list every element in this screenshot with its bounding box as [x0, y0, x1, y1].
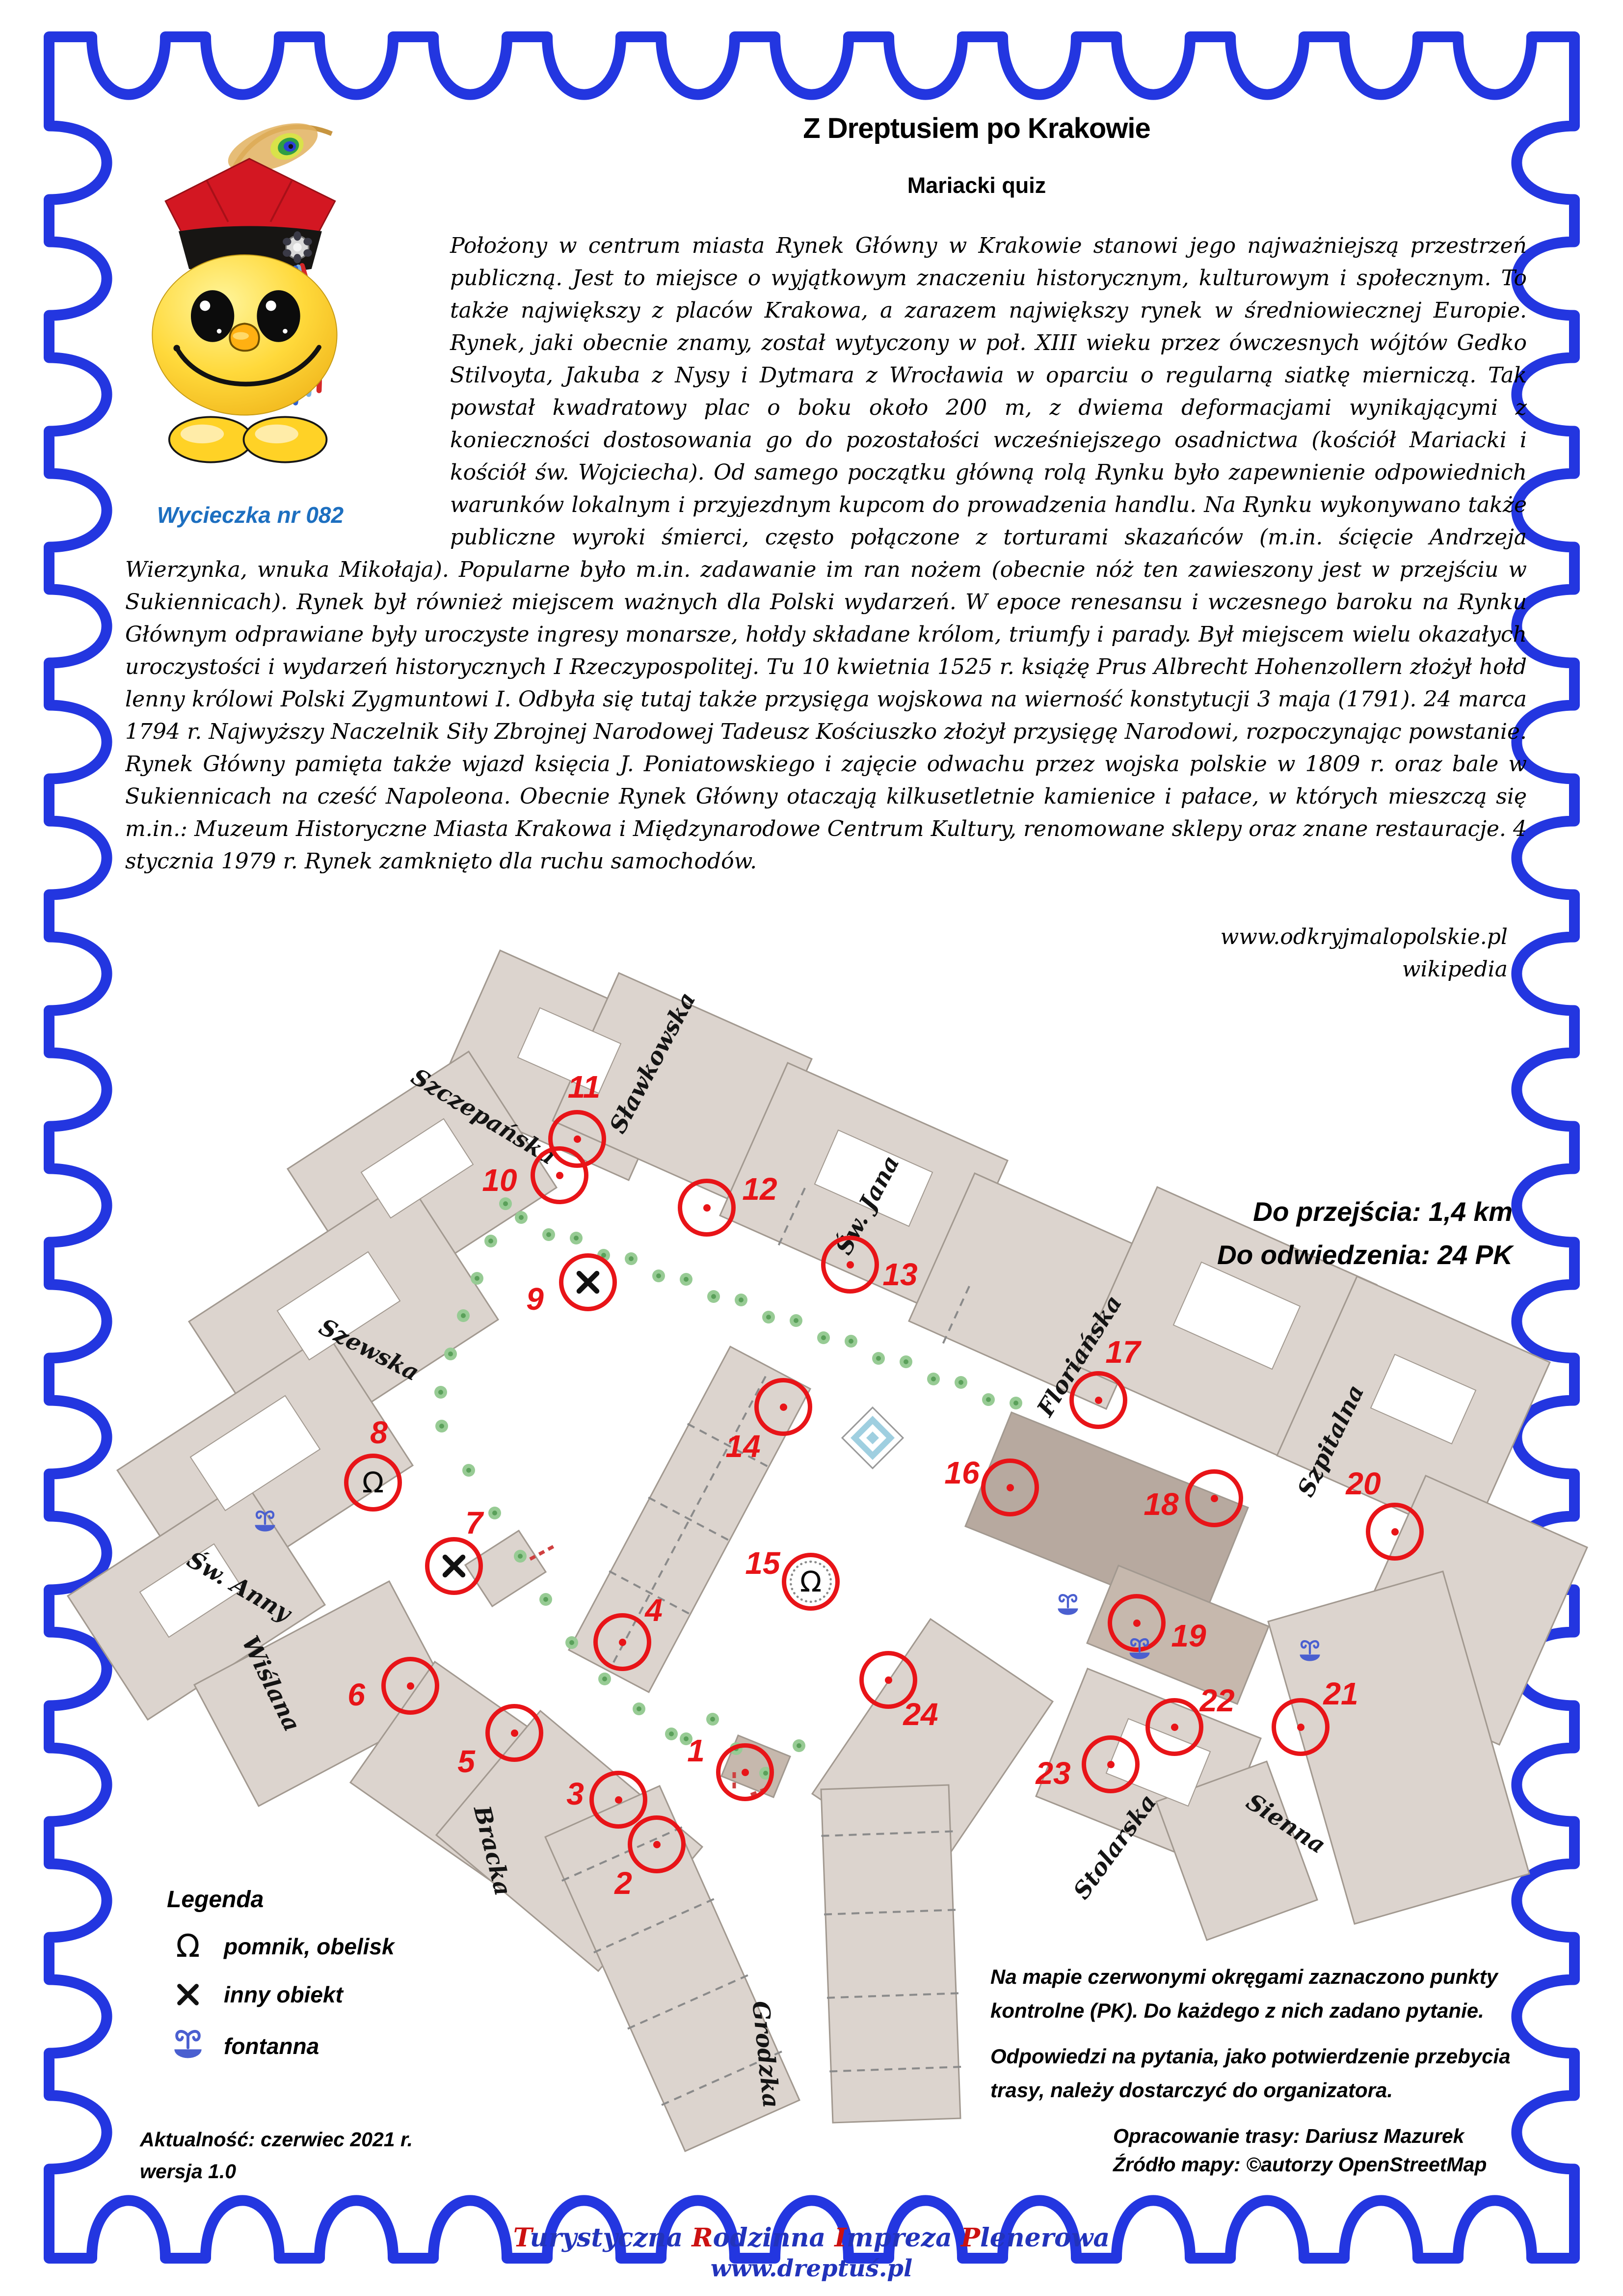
checkpoint-9	[559, 1253, 617, 1311]
fountain-icon	[1296, 1638, 1324, 1667]
checkpoint-dot	[885, 1676, 892, 1684]
map-source-text: Źródło mapy: ©autorzy OpenStreetMap	[1113, 2150, 1487, 2179]
checkpoint-dot	[1211, 1495, 1218, 1502]
checkpoint-dot	[556, 1172, 563, 1179]
checkpoint-dot	[1133, 1620, 1141, 1627]
checkpoint-number-17: 17	[1105, 1334, 1140, 1370]
legend-item-label: pomnik, obelisk	[224, 1933, 395, 1960]
fountain-icon	[169, 2027, 207, 2065]
checkpoint-23	[1082, 1735, 1140, 1793]
legend-title: Legenda	[167, 1886, 540, 1913]
organization-word: Impreza	[834, 2223, 961, 2253]
checkpoint-number-10: 10	[482, 1162, 517, 1198]
checkpoint-dot	[1391, 1528, 1399, 1536]
street-label-stolarska: Stolarska	[1068, 1789, 1162, 1904]
street-label-sienna: Sienna	[1241, 1788, 1330, 1859]
checkpoint-22	[1145, 1698, 1203, 1756]
organization-word: Rodzinna	[692, 2223, 834, 2253]
checkpoint-dot	[1095, 1397, 1102, 1404]
street-label-szczepanska: Szczepańska	[406, 1063, 560, 1171]
legend: Legenda Ωpomnik, obeliskinny obiektfonta…	[167, 1886, 540, 2065]
checkpoint-number-9: 9	[526, 1281, 544, 1317]
street-label-s-awkowska: Sławkowska	[604, 988, 701, 1138]
fountain-icon	[1125, 1636, 1154, 1667]
fountain-icon	[251, 1509, 279, 1537]
checkpoint-dot	[574, 1135, 581, 1143]
checkpoint-5	[485, 1704, 543, 1762]
checkpoint-dot	[742, 1769, 749, 1776]
organization-name: Turystyczna Rodzinna Impreza Plenerowa	[0, 2223, 1623, 2253]
checkpoint-20	[1366, 1503, 1424, 1561]
street-label-sw-anny: Św. Anny	[183, 1546, 296, 1627]
checkpoint-3	[589, 1771, 647, 1829]
checkpoint-dot	[703, 1204, 711, 1212]
checkpoint-6	[381, 1657, 439, 1715]
organization-word: Plenerowa	[961, 2223, 1110, 2253]
website-link: www.dreptuś.pl	[0, 2255, 1623, 2282]
checkpoint-1	[716, 1743, 774, 1801]
x-icon	[167, 1980, 209, 2009]
map-notes: Na mapie czerwonymi okręgami zaznaczono …	[990, 1960, 1535, 2119]
validity-text: Aktualność: czerwiec 2021 r.	[140, 2124, 413, 2156]
organization-word: Turystyczna	[513, 2223, 692, 2253]
checkpoint-number-7: 7	[465, 1505, 483, 1541]
checkpoint-number-13: 13	[882, 1256, 917, 1293]
checkpoint-number-23: 23	[1036, 1755, 1070, 1791]
meta-left: Aktualność: czerwiec 2021 r. wersja 1.0	[140, 2124, 413, 2188]
fountain-icon	[1296, 1638, 1324, 1669]
checkpoint-number-16: 16	[944, 1455, 979, 1491]
checkpoint-2	[628, 1815, 686, 1873]
street-label-bracka: Bracka	[468, 1803, 517, 1898]
fountain-icon	[251, 1509, 279, 1540]
fountain-icon	[1054, 1592, 1082, 1623]
checkpoint-11	[548, 1110, 606, 1168]
monument-icon: Ω	[167, 1931, 209, 1962]
checkpoint-12	[678, 1179, 736, 1237]
checkpoint-dot	[780, 1404, 787, 1411]
checkpoint-14	[754, 1378, 812, 1436]
checkpoint-dot	[1007, 1484, 1014, 1491]
checkpoint-8: Ω	[344, 1454, 402, 1512]
checkpoint-17	[1069, 1371, 1127, 1429]
checkpoint-18	[1185, 1469, 1243, 1527]
x-icon	[439, 1551, 469, 1581]
note-control-points: Na mapie czerwonymi okręgami zaznaczono …	[990, 1960, 1535, 2027]
checkpoint-number-2: 2	[614, 1865, 632, 1901]
checkpoint-dot	[407, 1682, 414, 1690]
x-icon	[173, 1980, 203, 2009]
checkpoint-16	[981, 1459, 1039, 1516]
checkpoint-number-11: 11	[568, 1069, 600, 1105]
version-text: wersja 1.0	[140, 2156, 413, 2188]
street-label-wislana: Wiślana	[236, 1632, 305, 1736]
checkpoint-number-14: 14	[725, 1428, 760, 1464]
checkpoint-21	[1272, 1698, 1330, 1756]
checkpoint-7	[425, 1537, 483, 1595]
legend-items: Ωpomnik, obeliskinny obiektfontanna	[167, 1931, 540, 2065]
checkpoint-dot	[511, 1729, 518, 1737]
checkpoint-number-18: 18	[1144, 1486, 1178, 1522]
checkpoint-number-15: 15	[745, 1545, 780, 1581]
checkpoint-dot	[615, 1796, 622, 1804]
checkpoint-number-1: 1	[687, 1732, 705, 1769]
checkpoint-15: Ω	[782, 1553, 840, 1611]
monument-icon: Ω	[800, 1567, 822, 1596]
checkpoint-number-5: 5	[457, 1743, 475, 1780]
note-answers: Odpowiedzi na pytania, jako potwierdzeni…	[990, 2039, 1535, 2107]
street-label-szewska: Szewska	[315, 1313, 423, 1386]
checkpoint-dot	[847, 1261, 854, 1269]
checkpoint-number-24: 24	[903, 1696, 938, 1732]
street-label-grodzka: Grodzka	[746, 1999, 785, 2109]
page-footer: Turystyczna Rodzinna Impreza Plenerowa w…	[0, 2223, 1623, 2282]
route-author-text: Opracowanie trasy: Dariusz Mazurek	[1113, 2122, 1487, 2150]
page: Z Dreptusiem po Krakowie Mariacki quiz W…	[0, 0, 1623, 2296]
checkpoint-number-20: 20	[1346, 1465, 1381, 1502]
fountain-icon	[1054, 1592, 1082, 1621]
checkpoint-dot	[653, 1841, 661, 1848]
legend-item-label: inny obiekt	[224, 1981, 343, 2008]
fountain-icon	[1125, 1636, 1154, 1665]
checkpoint-number-6: 6	[347, 1676, 365, 1713]
checkpoint-number-8: 8	[370, 1414, 388, 1451]
checkpoint-dot	[1107, 1761, 1115, 1768]
legend-item: fontanna	[167, 2027, 540, 2065]
fountain-icon	[167, 2027, 209, 2065]
checkpoint-dot	[1171, 1724, 1178, 1731]
monument-icon: Ω	[362, 1468, 384, 1497]
monument-icon: Ω	[176, 1931, 200, 1962]
meta-right: Opracowanie trasy: Dariusz Mazurek Źródł…	[1113, 2122, 1487, 2179]
legend-item: Ωpomnik, obelisk	[167, 1931, 540, 1962]
checkpoint-number-3: 3	[566, 1776, 584, 1812]
checkpoint-number-22: 22	[1199, 1682, 1234, 1719]
legend-item: inny obiekt	[167, 1980, 540, 2009]
checkpoint-number-12: 12	[742, 1171, 777, 1207]
checkpoint-number-4: 4	[645, 1592, 663, 1628]
checkpoint-13	[821, 1236, 879, 1294]
checkpoint-number-21: 21	[1323, 1675, 1358, 1712]
legend-item-label: fontanna	[224, 2033, 319, 2059]
checkpoint-dot	[619, 1639, 626, 1646]
checkpoint-4	[593, 1613, 651, 1671]
checkpoint-number-19: 19	[1171, 1618, 1206, 1654]
x-icon	[573, 1267, 603, 1297]
checkpoint-dot	[1297, 1724, 1304, 1731]
